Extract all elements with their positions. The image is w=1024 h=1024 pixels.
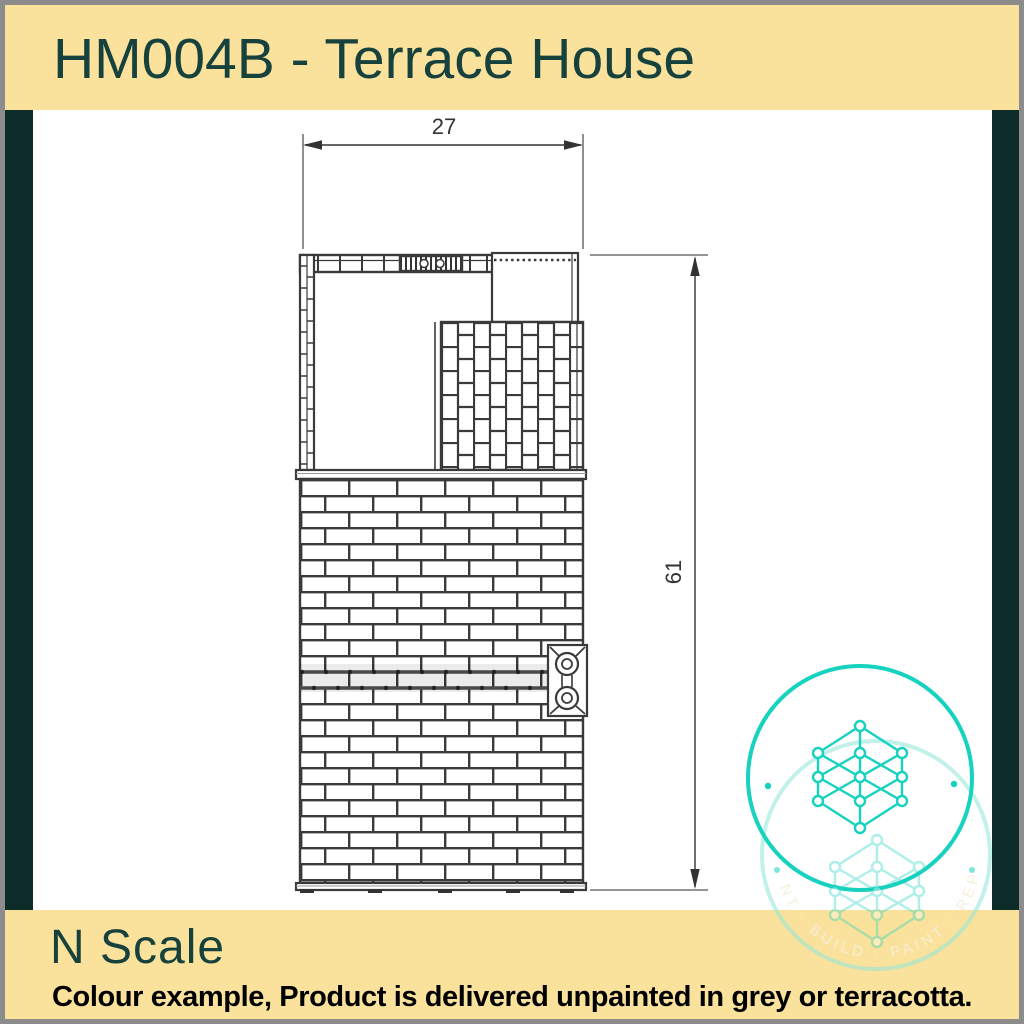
left-border-bar	[5, 110, 33, 910]
drawing-canvas	[33, 110, 992, 910]
right-border-bar	[992, 110, 1019, 910]
scale-label: N Scale	[50, 920, 225, 975]
colour-note: Colour example, Product is delivered unp…	[5, 981, 1019, 1014]
top-banner: HM004B - Terrace House	[5, 5, 1019, 110]
page-title: HM004B - Terrace House	[53, 5, 695, 110]
